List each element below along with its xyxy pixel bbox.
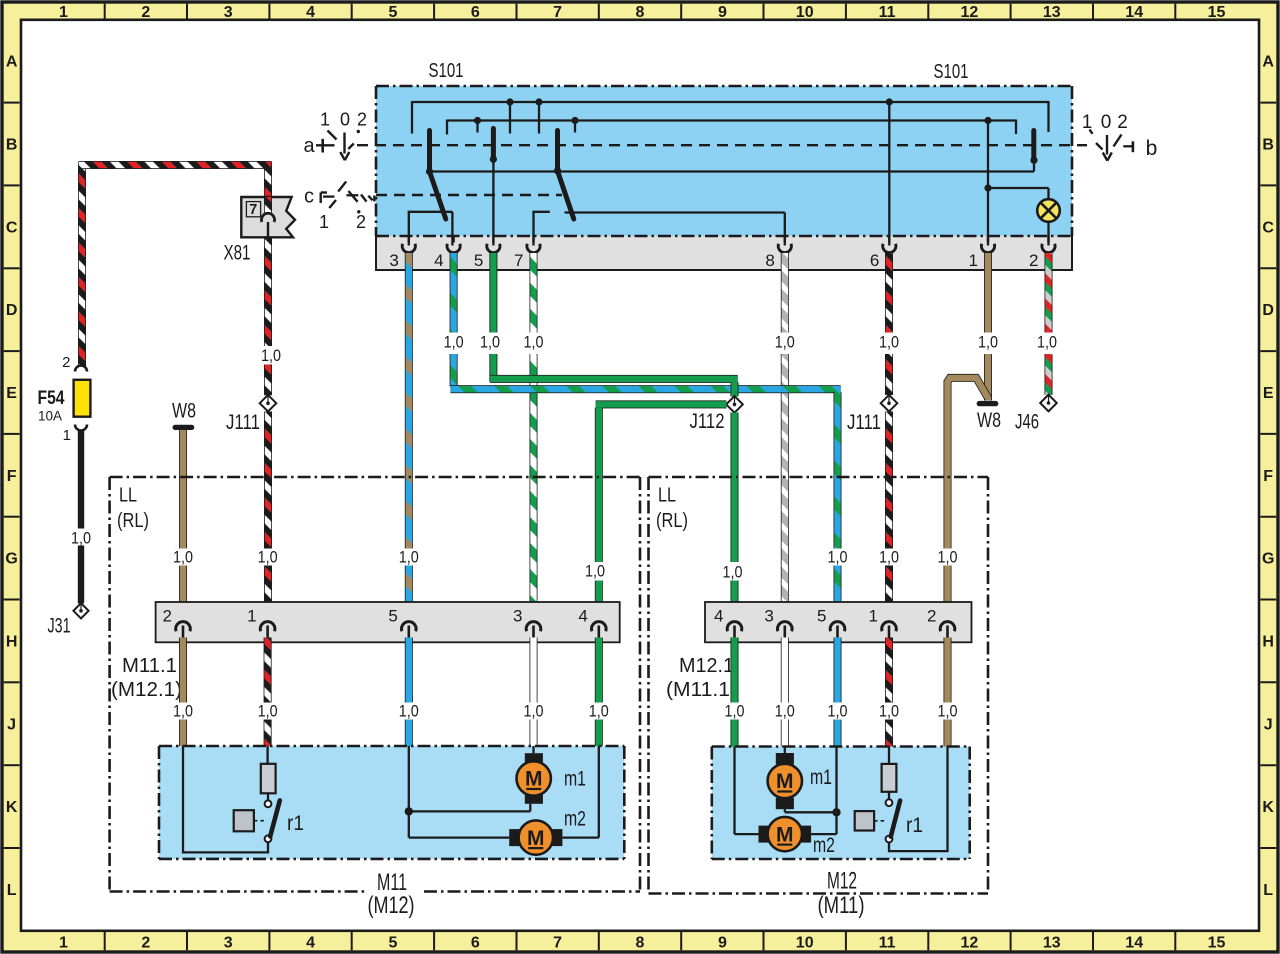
- svg-text:13: 13: [1043, 4, 1061, 21]
- svg-text:F54: F54: [38, 388, 65, 409]
- svg-text:11: 11: [879, 935, 896, 952]
- svg-text:1,0: 1,0: [71, 529, 91, 548]
- svg-text:1,0: 1,0: [399, 548, 419, 567]
- svg-text:0: 0: [340, 110, 350, 130]
- svg-text:1,0: 1,0: [879, 333, 899, 352]
- svg-text:J31: J31: [48, 615, 71, 638]
- svg-text:9: 9: [718, 4, 727, 21]
- svg-text:2: 2: [927, 607, 936, 626]
- svg-text:M: M: [527, 827, 545, 850]
- svg-text:a: a: [303, 135, 315, 157]
- svg-text:6: 6: [870, 251, 879, 270]
- svg-text:7: 7: [249, 201, 257, 218]
- svg-text:r1: r1: [906, 814, 923, 837]
- svg-text:D: D: [6, 302, 18, 319]
- svg-text:5: 5: [388, 935, 397, 952]
- svg-text:m1: m1: [564, 768, 586, 791]
- svg-text:7: 7: [553, 4, 562, 21]
- svg-text:1,0: 1,0: [725, 702, 745, 721]
- svg-text:11: 11: [879, 4, 896, 21]
- svg-text:0: 0: [1101, 112, 1112, 133]
- svg-text:m1: m1: [810, 766, 832, 789]
- svg-text:4: 4: [578, 607, 587, 626]
- svg-text:4: 4: [306, 935, 315, 952]
- svg-text:(M11): (M11): [818, 892, 865, 919]
- svg-text:(M11.1): (M11.1): [666, 679, 737, 701]
- svg-text:13: 13: [1043, 935, 1061, 952]
- svg-text:2: 2: [141, 4, 150, 21]
- svg-text:M: M: [525, 768, 543, 791]
- svg-text:B: B: [1262, 137, 1274, 154]
- svg-text:3: 3: [224, 935, 233, 952]
- svg-text:1,0: 1,0: [938, 702, 958, 721]
- svg-text:L: L: [7, 882, 17, 899]
- svg-text:1,0: 1,0: [399, 702, 419, 721]
- svg-text:J111: J111: [226, 411, 260, 434]
- svg-text:10: 10: [796, 4, 814, 21]
- svg-text:1,0: 1,0: [1037, 333, 1057, 352]
- svg-text:H: H: [6, 633, 18, 650]
- svg-text:X81: X81: [224, 242, 251, 265]
- svg-text:3: 3: [764, 607, 773, 626]
- svg-text:2: 2: [62, 354, 70, 371]
- svg-text:1: 1: [320, 110, 330, 130]
- svg-text:M: M: [776, 770, 794, 793]
- svg-text:1,0: 1,0: [524, 702, 544, 721]
- svg-text:S101: S101: [934, 61, 969, 83]
- svg-text:1,0: 1,0: [879, 548, 899, 567]
- svg-text:15: 15: [1208, 935, 1226, 952]
- svg-text:(M12): (M12): [368, 892, 415, 919]
- svg-text:LL: LL: [658, 485, 676, 507]
- svg-text:A: A: [6, 54, 18, 71]
- svg-text:1: 1: [63, 427, 71, 444]
- svg-text:M12.1: M12.1: [679, 655, 734, 677]
- svg-text:6: 6: [471, 4, 480, 21]
- svg-text:2: 2: [356, 212, 366, 232]
- svg-text:b: b: [1146, 137, 1158, 160]
- svg-text:3: 3: [389, 251, 398, 270]
- svg-text:1: 1: [319, 212, 329, 232]
- svg-text:1: 1: [969, 251, 978, 270]
- svg-text:M12: M12: [827, 868, 857, 895]
- svg-text:H: H: [1262, 633, 1274, 650]
- svg-text:1,0: 1,0: [173, 548, 193, 567]
- svg-text:C: C: [6, 219, 18, 236]
- svg-text:1,0: 1,0: [589, 702, 609, 721]
- svg-text:c: c: [304, 186, 314, 208]
- svg-text:(M12.1): (M12.1): [111, 679, 182, 701]
- svg-text:7: 7: [553, 935, 562, 952]
- svg-text:1,0: 1,0: [585, 562, 605, 581]
- svg-text:7: 7: [514, 251, 523, 270]
- svg-text:D: D: [1262, 302, 1274, 319]
- svg-text:1,0: 1,0: [258, 548, 278, 567]
- svg-text:3: 3: [224, 4, 233, 21]
- svg-text:(RL): (RL): [117, 510, 149, 532]
- svg-text:2: 2: [141, 935, 150, 952]
- svg-text:M: M: [776, 823, 794, 846]
- svg-text:L: L: [1263, 882, 1273, 899]
- svg-text:K: K: [6, 799, 18, 816]
- svg-text:S101: S101: [429, 60, 464, 82]
- svg-text:1,0: 1,0: [723, 563, 743, 582]
- svg-text:E: E: [6, 385, 17, 402]
- svg-text:B: B: [6, 137, 18, 154]
- svg-text:1: 1: [869, 607, 878, 626]
- svg-text:G: G: [1262, 551, 1274, 568]
- svg-text:m2: m2: [564, 808, 586, 831]
- svg-text:F: F: [7, 468, 17, 485]
- svg-text:4: 4: [714, 607, 723, 626]
- svg-text:1,0: 1,0: [828, 702, 848, 721]
- svg-text:15: 15: [1208, 4, 1226, 21]
- svg-text:8: 8: [636, 4, 645, 21]
- svg-text:6: 6: [471, 935, 480, 952]
- svg-text:J112: J112: [690, 410, 725, 433]
- svg-text:5: 5: [474, 251, 483, 270]
- svg-text:1,0: 1,0: [444, 333, 464, 352]
- svg-text:3: 3: [513, 607, 522, 626]
- svg-text:1,0: 1,0: [173, 702, 193, 721]
- svg-text:E: E: [1263, 385, 1274, 402]
- svg-text:12: 12: [961, 4, 979, 21]
- svg-text:J: J: [7, 716, 16, 733]
- svg-text:1,0: 1,0: [480, 333, 500, 352]
- svg-text:8: 8: [765, 251, 774, 270]
- svg-text:1,0: 1,0: [524, 333, 544, 352]
- svg-text:A: A: [1262, 54, 1274, 71]
- svg-text:J111: J111: [847, 411, 881, 434]
- svg-text:J: J: [1264, 716, 1273, 733]
- svg-text:r1: r1: [287, 812, 304, 835]
- svg-text:14: 14: [1125, 4, 1143, 21]
- svg-text:1,0: 1,0: [938, 548, 958, 567]
- svg-text:2: 2: [163, 607, 172, 626]
- svg-text:1,0: 1,0: [879, 702, 899, 721]
- svg-text:C: C: [1262, 219, 1274, 236]
- svg-text:10: 10: [796, 935, 814, 952]
- svg-text:10A: 10A: [38, 409, 62, 424]
- svg-text:1,0: 1,0: [258, 702, 278, 721]
- svg-text:14: 14: [1125, 935, 1143, 952]
- svg-text:4: 4: [434, 251, 443, 270]
- svg-text:1: 1: [247, 607, 256, 626]
- svg-text:1,0: 1,0: [261, 346, 281, 365]
- svg-text:M11.1: M11.1: [122, 655, 177, 677]
- svg-text:5: 5: [388, 607, 397, 626]
- svg-text:1,0: 1,0: [978, 333, 998, 352]
- svg-text:1,0: 1,0: [775, 702, 795, 721]
- svg-text:4: 4: [306, 4, 315, 21]
- svg-text:2: 2: [357, 110, 367, 130]
- svg-text:9: 9: [718, 935, 727, 952]
- svg-text:1: 1: [59, 4, 68, 21]
- svg-text:12: 12: [961, 935, 979, 952]
- svg-text:LL: LL: [119, 485, 137, 507]
- svg-text:W8: W8: [977, 409, 1001, 432]
- svg-text:2: 2: [1029, 251, 1038, 270]
- svg-text:F: F: [1263, 468, 1273, 485]
- svg-text:W8: W8: [172, 400, 196, 423]
- svg-text:1,0: 1,0: [775, 333, 795, 352]
- svg-text:8: 8: [636, 935, 645, 952]
- svg-text:5: 5: [817, 607, 826, 626]
- svg-text:J46: J46: [1015, 411, 1039, 434]
- svg-text:m2: m2: [813, 834, 835, 857]
- svg-text:K: K: [1262, 799, 1274, 816]
- svg-text:1: 1: [59, 935, 68, 952]
- svg-text:1,0: 1,0: [828, 548, 848, 567]
- svg-text:2: 2: [1117, 112, 1128, 133]
- svg-text:5: 5: [388, 4, 397, 21]
- svg-text:G: G: [5, 551, 17, 568]
- svg-text:(RL): (RL): [656, 510, 688, 532]
